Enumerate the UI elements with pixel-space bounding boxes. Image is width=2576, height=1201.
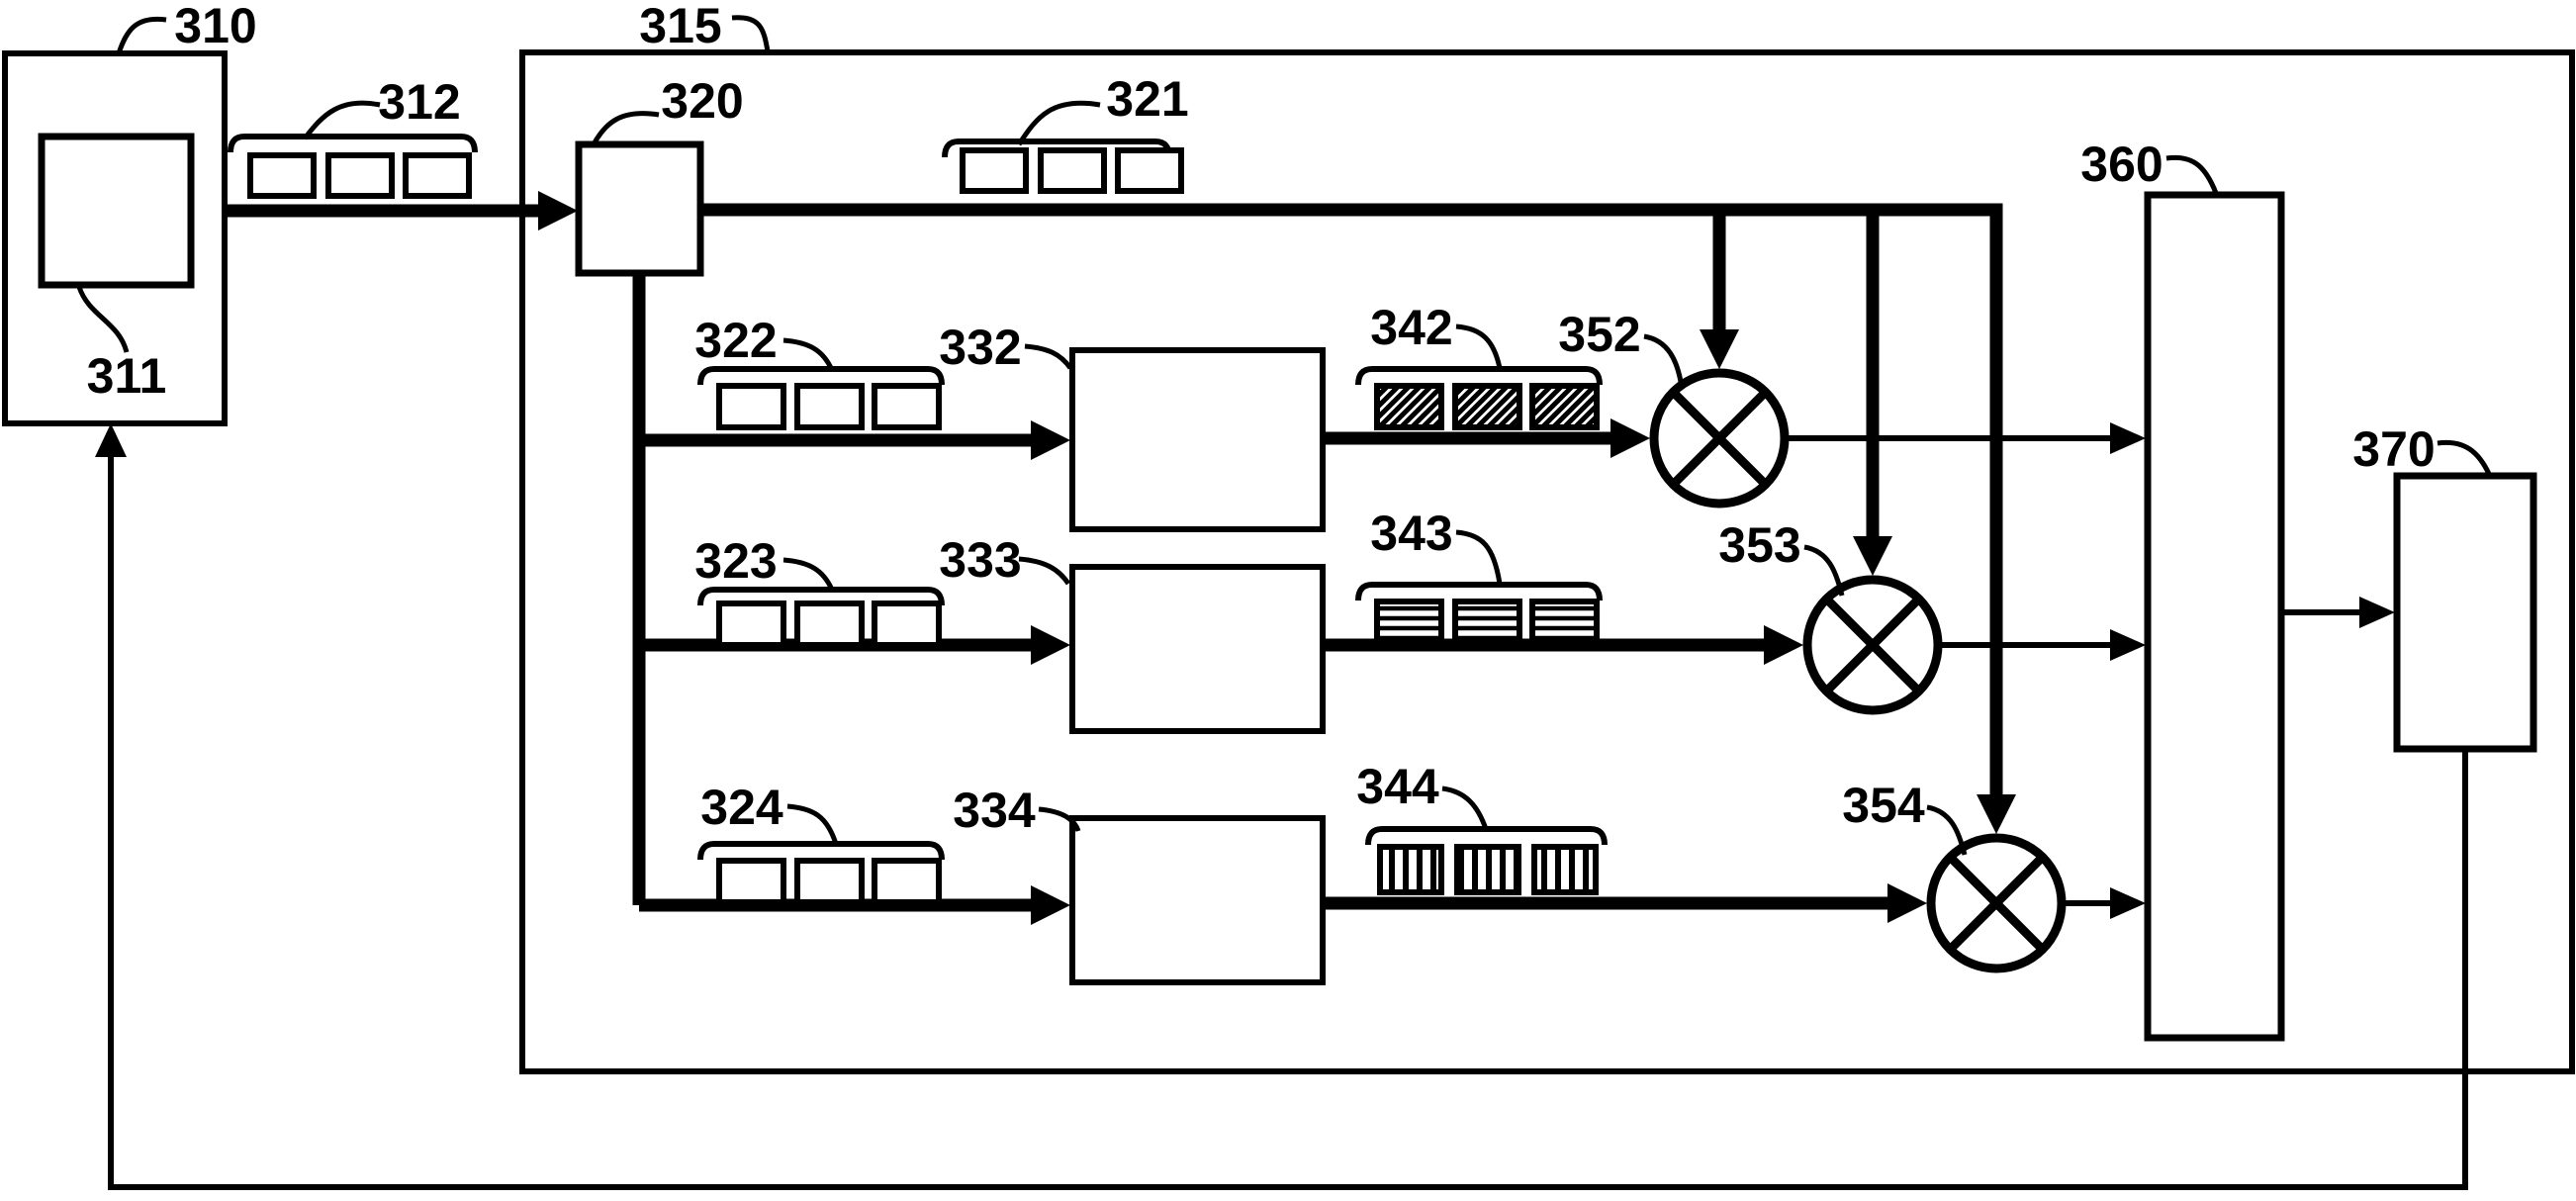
queue-323-icon bbox=[700, 590, 942, 645]
top-bus-line-321 bbox=[700, 210, 1996, 797]
label-311: 311 bbox=[87, 348, 167, 404]
leader-323 bbox=[783, 560, 832, 590]
arrowhead-into-354 bbox=[1887, 883, 1927, 923]
leader-370 bbox=[2438, 442, 2489, 474]
arrowhead-352-to-360 bbox=[2110, 422, 2146, 454]
label-332: 332 bbox=[939, 320, 1021, 375]
leader-352 bbox=[1644, 336, 1682, 388]
arrowhead-353-to-360 bbox=[2110, 629, 2146, 661]
label-323: 323 bbox=[694, 533, 777, 589]
leader-342 bbox=[1456, 326, 1500, 368]
leader-312 bbox=[305, 103, 380, 139]
arrowhead-into-333 bbox=[1031, 625, 1070, 665]
arrowhead-into-332 bbox=[1031, 420, 1070, 460]
leader-333 bbox=[1019, 559, 1068, 584]
arrowhead-feedback-into-310 bbox=[95, 423, 127, 457]
diagram-page: 310 311 312 315 320 321 322 332 342 352 … bbox=[0, 0, 2576, 1201]
label-312: 312 bbox=[378, 74, 460, 130]
arrowhead-drop-352 bbox=[1700, 329, 1739, 369]
queue-322-icon bbox=[700, 369, 942, 427]
label-310: 310 bbox=[174, 0, 256, 53]
queue-343-bracket bbox=[1358, 585, 1600, 600]
multiplier-352-icon bbox=[1654, 373, 1785, 504]
label-334: 334 bbox=[953, 783, 1036, 838]
label-324: 324 bbox=[700, 780, 783, 835]
arrowheads bbox=[95, 191, 2395, 925]
block-360-box bbox=[2148, 195, 2281, 1038]
arrowhead-into-353 bbox=[1764, 625, 1803, 665]
arrowhead-into-334 bbox=[1031, 885, 1070, 925]
label-320: 320 bbox=[661, 73, 743, 129]
coded-queue-344-icon bbox=[1368, 829, 1605, 892]
block-332-box bbox=[1072, 350, 1323, 529]
label-342: 342 bbox=[1370, 300, 1452, 355]
arrowhead-drop-353 bbox=[1853, 536, 1892, 576]
leader-315 bbox=[732, 18, 768, 51]
queue-312-bracket bbox=[230, 137, 475, 152]
arrowhead-into-352 bbox=[1610, 418, 1650, 458]
queue-322-bracket bbox=[700, 369, 942, 385]
queue-342-bracket bbox=[1358, 369, 1600, 385]
leader-360 bbox=[2166, 157, 2216, 193]
block-333-box bbox=[1072, 567, 1323, 731]
arrowhead-354-to-360 bbox=[2110, 887, 2146, 919]
label-360: 360 bbox=[2080, 137, 2162, 192]
leader-343 bbox=[1456, 532, 1500, 584]
multiplier-353-icon bbox=[1807, 580, 1938, 710]
leader-344 bbox=[1442, 788, 1486, 829]
label-315: 315 bbox=[639, 0, 721, 53]
coded-queue-342-icon bbox=[1358, 369, 1600, 427]
queue-344-bracket bbox=[1368, 829, 1605, 845]
queue-312-icon bbox=[230, 137, 475, 196]
arrowhead-360-to-370 bbox=[2359, 597, 2395, 628]
leader-324 bbox=[787, 806, 836, 844]
queue-324-icon bbox=[700, 844, 942, 902]
queue-324-bracket bbox=[700, 844, 942, 860]
label-321: 321 bbox=[1106, 71, 1188, 127]
leader-310 bbox=[119, 19, 166, 53]
label-344: 344 bbox=[1356, 759, 1439, 814]
leader-321 bbox=[1019, 103, 1100, 144]
block-334-box bbox=[1072, 818, 1323, 982]
label-333: 333 bbox=[939, 532, 1021, 588]
label-352: 352 bbox=[1558, 307, 1640, 362]
label-343: 343 bbox=[1370, 506, 1452, 561]
label-322: 322 bbox=[694, 313, 777, 368]
leader-332 bbox=[1025, 346, 1070, 368]
queue-321-icon bbox=[945, 141, 1181, 191]
label-354: 354 bbox=[1842, 778, 1925, 833]
block-311-box bbox=[42, 137, 191, 285]
block-370-box bbox=[2397, 476, 2533, 749]
label-370: 370 bbox=[2352, 421, 2435, 477]
leader-320 bbox=[594, 114, 659, 144]
multiplier-354-icon bbox=[1931, 838, 2062, 969]
block-diagram: 310 311 312 315 320 321 322 332 342 352 … bbox=[0, 0, 2576, 1201]
arrowhead-drop-354 bbox=[1977, 794, 2016, 834]
leader-322 bbox=[783, 340, 832, 370]
label-353: 353 bbox=[1718, 517, 1800, 573]
block-320-box bbox=[579, 144, 700, 273]
arrowhead-into-320 bbox=[538, 191, 578, 231]
coded-queue-343-icon bbox=[1358, 585, 1600, 643]
